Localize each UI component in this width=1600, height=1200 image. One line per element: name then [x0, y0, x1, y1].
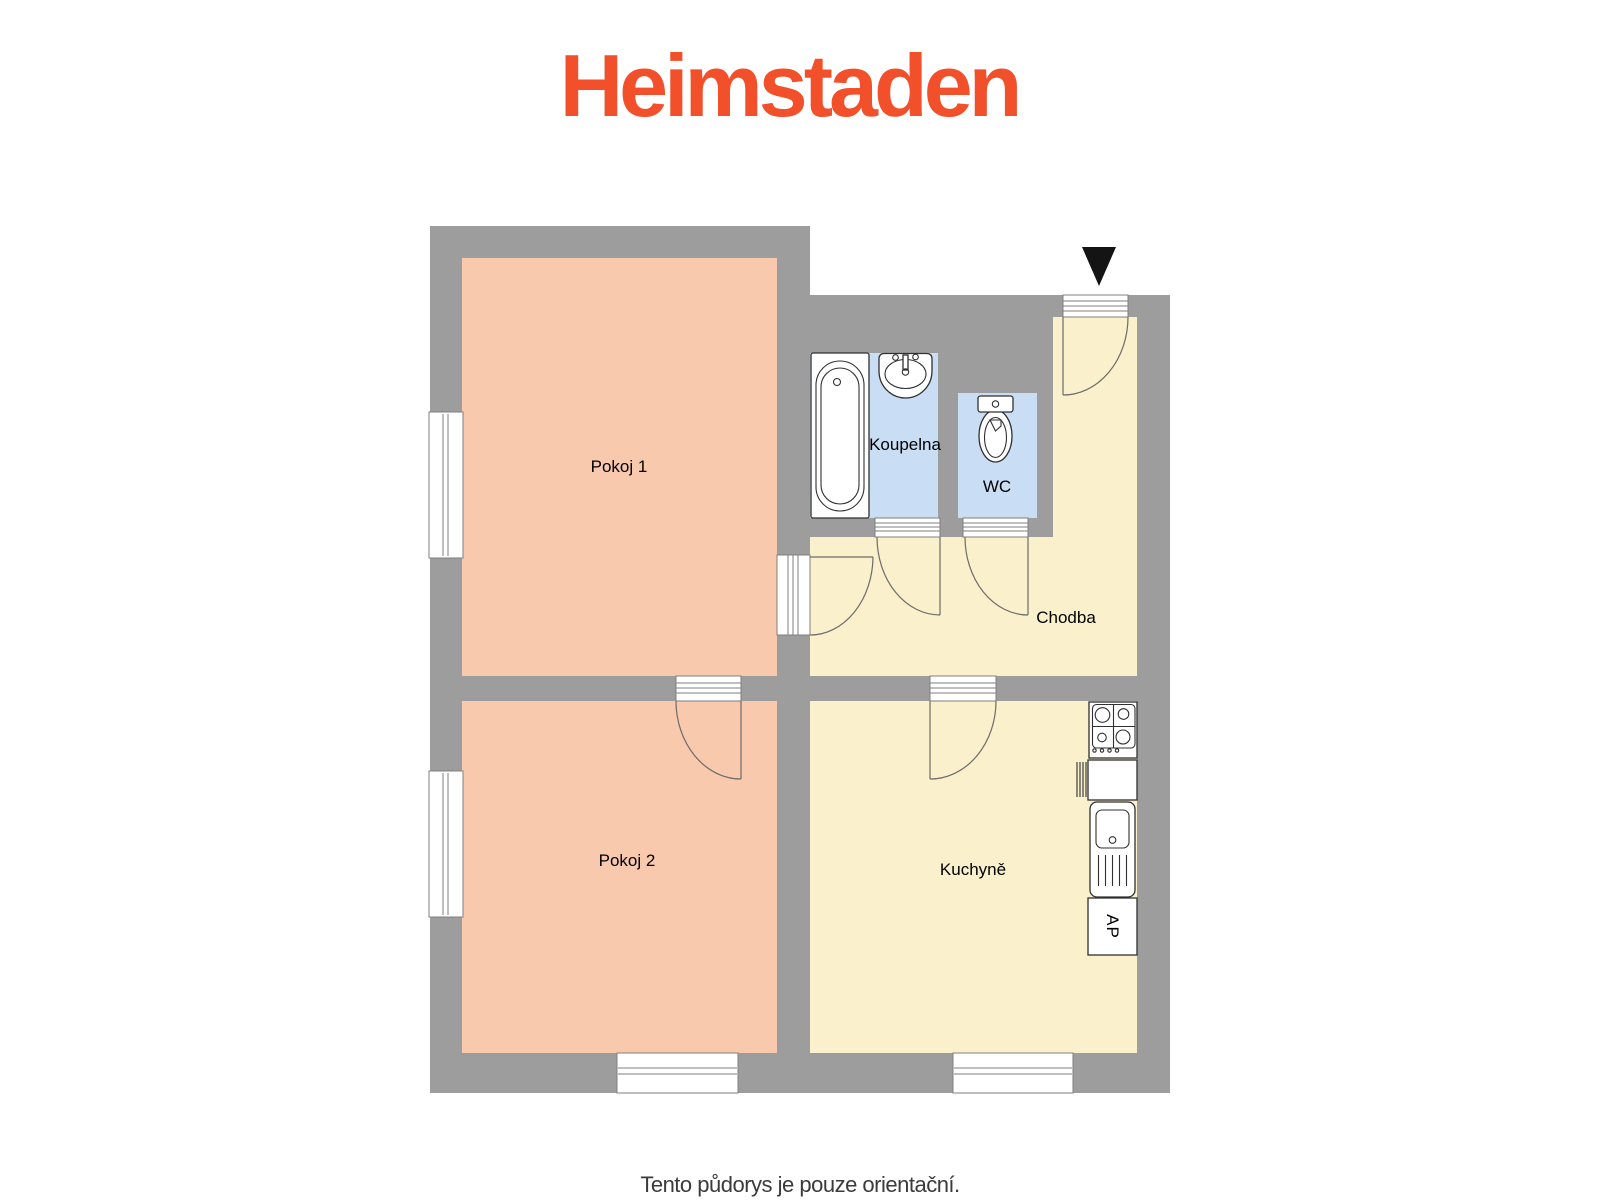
label-kuchyne: Kuchyně [940, 860, 1006, 879]
wall-center-vertical [777, 226, 810, 1053]
kitchen-sink-icon [1090, 802, 1135, 897]
label-wc: WC [983, 477, 1011, 496]
label-chodba: Chodba [1036, 608, 1096, 627]
entrance-arrow-icon [1082, 247, 1116, 286]
disclaimer-text: Tento půdorys je pouze orientační. [0, 1172, 1600, 1198]
dishwasher-icon: AP [1088, 898, 1137, 955]
entrance-door-threshold [1063, 295, 1128, 317]
dishwasher-label: AP [1103, 914, 1122, 939]
wall-mid-horizontal [430, 676, 1137, 701]
label-pokoj2: Pokoj 2 [599, 851, 656, 870]
window-kuchyne-bottom [953, 1053, 1073, 1093]
label-pokoj1: Pokoj 1 [591, 457, 648, 476]
window-pokoj2-bottom [617, 1053, 738, 1093]
koupelna-door-threshold [875, 518, 940, 537]
label-koupelna: Koupelna [869, 435, 941, 454]
page: Heimstaden [0, 0, 1600, 1200]
room-pokoj2 [462, 701, 777, 1053]
pokoj1-door-threshold [777, 555, 810, 635]
kitchen-counter [1077, 760, 1137, 800]
room-chodba-vestibule [1053, 317, 1137, 542]
wall-koupelna-wc [938, 353, 958, 518]
stove-icon [1089, 702, 1137, 758]
wall-wc-top [958, 317, 1053, 393]
wall-top-left [430, 226, 810, 258]
toilet-icon [978, 396, 1013, 462]
window-pokoj1 [429, 412, 463, 558]
wall-right [1137, 295, 1170, 1093]
pokoj2-door-threshold [676, 676, 741, 701]
wall-koupelna-top [810, 317, 958, 353]
window-pokoj2 [429, 771, 463, 917]
floor-plan: AP Pokoj 1 Pokoj 2 Koupelna WC Chodba Ku… [0, 0, 1600, 1200]
wall-left [430, 226, 462, 1093]
bathtub-icon [811, 353, 869, 518]
wall-wc-right [1037, 393, 1053, 518]
kuchyne-door-threshold [930, 676, 996, 701]
wc-door-threshold [963, 518, 1028, 537]
